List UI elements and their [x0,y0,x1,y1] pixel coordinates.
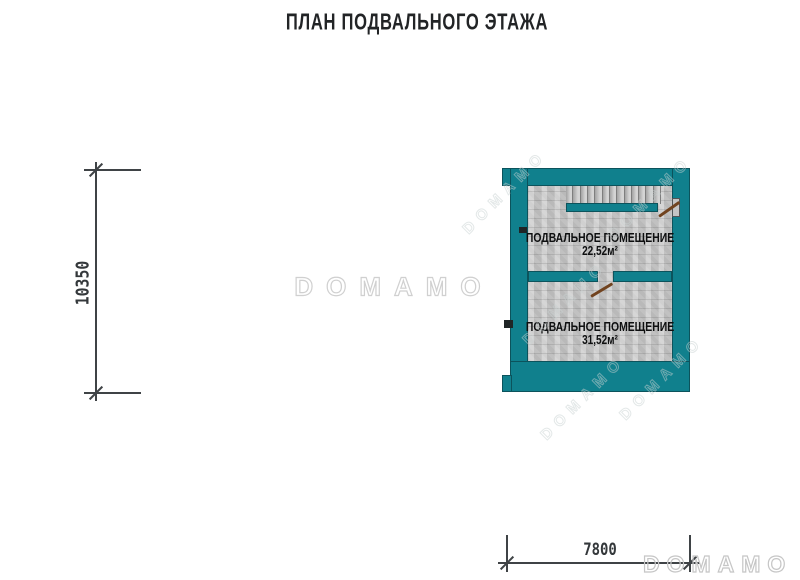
wall-partition-right [613,271,672,282]
page-title: ПЛАН ПОДВАЛЬНОГО ЭТАЖА [286,9,548,36]
dimension-extension [689,535,691,572]
wall-footing-tab [502,375,512,392]
vent-icon [504,320,513,328]
stair-tread [581,186,588,204]
dimension-line [95,162,97,401]
wall-top [502,168,690,186]
room-2-label: ПОДВАЛЬНОЕ ПОМЕЩЕНИЕ 31,52м² [526,320,674,348]
room-2-area: 31,52м² [526,334,674,348]
room-2-name: ПОДВАЛЬНОЕ ПОМЕЩЕНИЕ [526,320,674,334]
room-1-area: 22,52м² [526,245,674,259]
dimension-width-value: 7800 [583,540,617,560]
watermark-center: DOMAMO [294,272,493,303]
dimension-line [498,562,700,564]
stair-tread [573,186,580,204]
floor-plan-page: ПЛАН ПОДВАЛЬНОГО ЭТАЖА ПОДВАЛЬНОЕ ПОМЕЩЕ… [0,0,800,580]
stairs [566,186,661,204]
stair-tread [625,186,632,204]
room-1-name: ПОДВАЛЬНОЕ ПОМЕЩЕНИЕ [526,231,674,245]
stair-tread [588,186,595,204]
stair-tread [595,186,602,204]
stair-tread [654,186,661,204]
stair-railing-wall [566,203,658,212]
dimension-extension [506,535,508,572]
room-1-label: ПОДВАЛЬНОЕ ПОМЕЩЕНИЕ 22,52м² [526,231,674,259]
stair-tread [566,186,573,204]
stair-tread [617,186,624,204]
dimension-height-value: 10350 [73,261,94,305]
wall-bottom [510,361,690,392]
stair-tread [610,186,617,204]
stair-tread [639,186,646,204]
stair-tread [603,186,610,204]
stair-tread [632,186,639,204]
stair-tread [646,186,653,204]
wall-partition-left [528,271,598,282]
watermark-corner: DOMAMO [643,551,792,578]
